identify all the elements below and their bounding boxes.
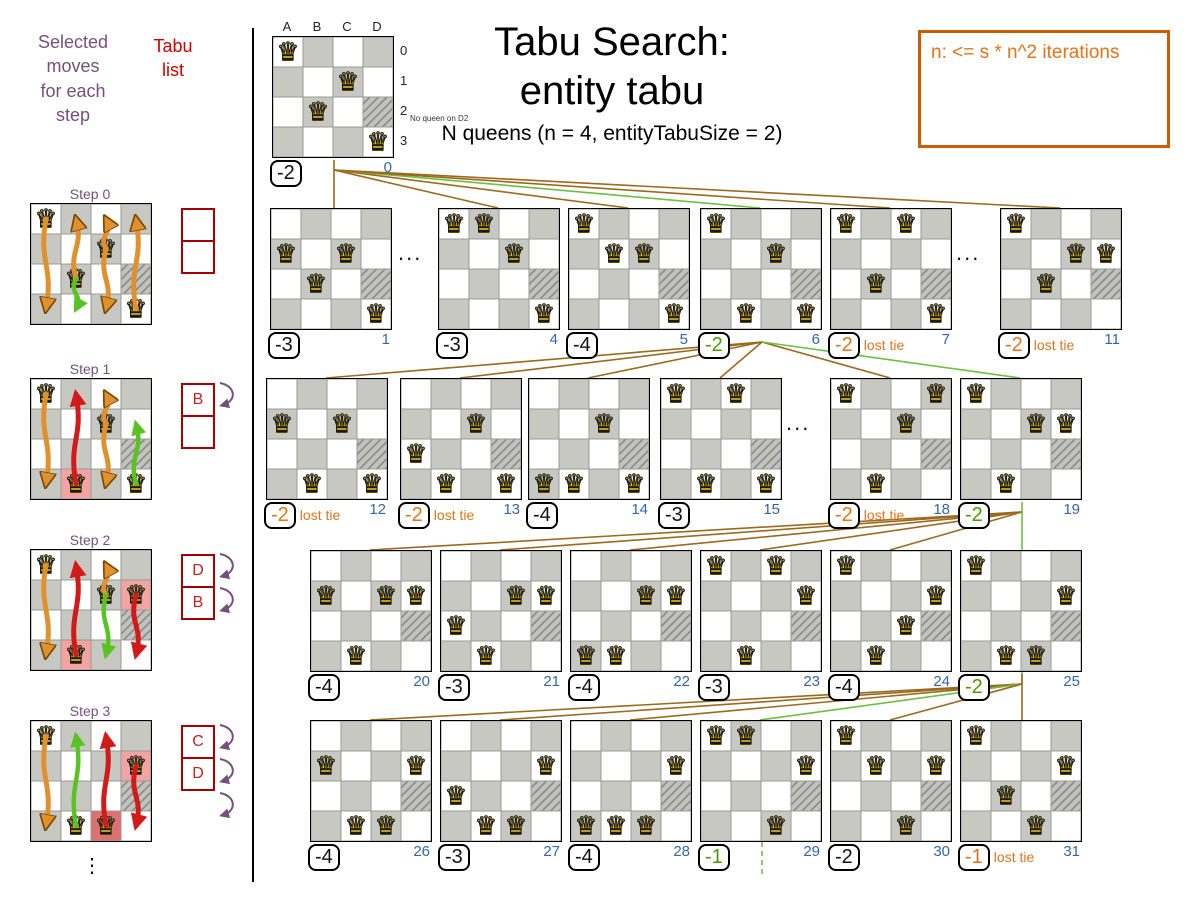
queen-icon: ♛ [1055, 754, 1077, 779]
queen-icon: ♛ [307, 100, 329, 125]
cell-B0: ♛ [469, 209, 499, 239]
cell-C3 [589, 469, 619, 499]
score-row-21: -321 [438, 672, 562, 702]
queen-icon: ♛ [65, 267, 87, 292]
cell-C1 [891, 751, 921, 781]
cell-B0 [991, 551, 1021, 581]
board-23: ♛♛♛♛ [700, 550, 822, 672]
cell-A3 [401, 469, 431, 499]
queen-icon: ♛ [755, 472, 777, 497]
cell-B2 [861, 439, 891, 469]
queen-icon: ♛ [505, 584, 527, 609]
cell-A0 [441, 551, 471, 581]
queen-icon: ♛ [925, 754, 947, 779]
cell-A3 [439, 299, 469, 329]
cell-A0 [401, 379, 431, 409]
cell-C3 [891, 641, 921, 671]
board-index: 30 [933, 843, 950, 860]
lost-tie-label: lost tie [994, 849, 1034, 865]
cell-D2 [751, 439, 781, 469]
score-row-25: -225 [958, 672, 1082, 702]
board-index: 13 [503, 501, 520, 518]
tabu-entry-empty [181, 240, 215, 274]
tabu-entry-empty [181, 208, 215, 242]
queen-icon: ♛ [405, 754, 427, 779]
cell-C0 [761, 209, 791, 239]
cell-A0 [529, 379, 559, 409]
cell-B2 [691, 439, 721, 469]
cell-C1: ♛ [91, 409, 121, 439]
cell-B1 [61, 751, 91, 781]
board-index: 4 [550, 331, 558, 348]
cell-D2 [1091, 269, 1121, 299]
cell-D1: ♛ [661, 581, 691, 611]
cell-D0 [491, 379, 521, 409]
cell-B0 [861, 551, 891, 581]
tree-ellipsis: ... [398, 240, 422, 266]
cell-A0: ♛ [661, 379, 691, 409]
cell-B2 [341, 611, 371, 641]
queen-icon: ♛ [367, 130, 389, 155]
board-index: 31 [1063, 843, 1080, 860]
score-row-4: -34 [436, 330, 560, 360]
cell-B1 [991, 751, 1021, 781]
cell-B1 [731, 581, 761, 611]
cell-B2: ♛ [301, 269, 331, 299]
cell-C0 [371, 721, 401, 751]
cell-B0 [471, 551, 501, 581]
queen-icon: ♛ [895, 614, 917, 639]
score-row-22: -422 [568, 672, 692, 702]
cell-B3 [599, 299, 629, 329]
cell-B3 [303, 127, 333, 157]
cell-A2 [31, 439, 61, 469]
cell-C3: ♛ [761, 811, 791, 841]
board-s1: ♛♛♛♛ [30, 378, 152, 500]
cell-A0 [311, 551, 341, 581]
cell-A1 [701, 751, 731, 781]
queen-icon: ♛ [533, 472, 555, 497]
queen-icon: ♛ [125, 583, 147, 608]
cell-C3 [499, 299, 529, 329]
cell-B3: ♛ [601, 811, 631, 841]
queen-icon: ♛ [705, 212, 727, 237]
cell-C3 [333, 127, 363, 157]
cell-C3: ♛ [891, 811, 921, 841]
cell-A0: ♛ [31, 204, 61, 234]
queen-icon: ♛ [405, 584, 427, 609]
cell-D1 [363, 67, 393, 97]
cell-B3: ♛ [61, 469, 91, 499]
board-15: ♛♛♛♛ [660, 378, 782, 500]
queen-icon: ♛ [65, 643, 87, 668]
board-25: ♛♛♛♛ [960, 550, 1082, 672]
cell-C0 [327, 379, 357, 409]
root-col-label-A: A [272, 19, 302, 34]
cell-D1: ♛ [121, 751, 151, 781]
cell-D0 [529, 209, 559, 239]
score-badge: -2 [264, 502, 296, 529]
cell-A0: ♛ [701, 551, 731, 581]
cell-B3: ♛ [691, 469, 721, 499]
cell-B3 [1031, 299, 1061, 329]
cell-D2 [659, 269, 689, 299]
cell-A3 [273, 127, 303, 157]
cell-D0 [1051, 551, 1081, 581]
cell-B2 [991, 439, 1021, 469]
tabu-shift-arrow-icon [216, 754, 242, 786]
cell-C2: ♛ [891, 611, 921, 641]
board-29: ♛♛♛♛ [700, 720, 822, 842]
no-queen-annotation: No queen on D2 [410, 114, 468, 123]
cell-A3 [569, 299, 599, 329]
cell-A3 [267, 469, 297, 499]
cell-C0 [1021, 379, 1051, 409]
tree-edge [334, 170, 890, 208]
cell-B3 [861, 811, 891, 841]
queen-icon: ♛ [965, 382, 987, 407]
cell-A1 [31, 234, 61, 264]
cell-C3 [1021, 469, 1051, 499]
cell-C1: ♛ [461, 409, 491, 439]
queen-icon: ♛ [505, 814, 527, 839]
board-index: 11 [1104, 331, 1120, 348]
cell-D1: ♛ [401, 581, 431, 611]
queen-icon: ♛ [795, 302, 817, 327]
cell-D0 [121, 721, 151, 751]
cell-C2 [721, 439, 751, 469]
lost-tie-label: lost tie [864, 337, 904, 353]
cell-B1 [431, 409, 461, 439]
cell-C0 [331, 209, 361, 239]
cell-D1 [791, 239, 821, 269]
tabu-shift-arrow-icon [216, 378, 242, 410]
cell-A3 [831, 469, 861, 499]
tabu-shift-arrow-icon [216, 549, 242, 581]
board-index: 29 [803, 843, 820, 860]
cell-A1 [831, 409, 861, 439]
queen-icon: ♛ [315, 754, 337, 779]
cell-C2 [501, 781, 531, 811]
score-badge: -2 [828, 332, 860, 359]
cell-A3 [961, 811, 991, 841]
queen-icon: ♛ [865, 472, 887, 497]
cell-C3: ♛ [1021, 641, 1051, 671]
queen-icon: ♛ [603, 242, 625, 267]
root-row-label-3: 3 [400, 126, 407, 156]
score-badge: -2 [998, 332, 1030, 359]
board-index: 26 [413, 843, 430, 860]
cell-C1 [721, 409, 751, 439]
cell-C2 [761, 611, 791, 641]
cell-B2 [431, 439, 461, 469]
queen-icon: ♛ [65, 814, 87, 839]
score-badge: -4 [828, 674, 860, 701]
cell-C2 [371, 611, 401, 641]
cell-B0 [601, 721, 631, 751]
cell-A0 [571, 551, 601, 581]
cell-A1 [571, 751, 601, 781]
cell-B1 [471, 751, 501, 781]
cell-C1 [501, 751, 531, 781]
cell-A3 [831, 811, 861, 841]
cell-D1 [921, 239, 951, 269]
cell-D1: ♛ [661, 751, 691, 781]
score-badge: -4 [568, 674, 600, 701]
cell-D2 [361, 269, 391, 299]
cell-C2 [1021, 611, 1051, 641]
board-30: ♛♛♛♛ [830, 720, 952, 842]
cell-C0 [589, 379, 619, 409]
cell-A2 [273, 97, 303, 127]
cell-A2: ♛ [401, 439, 431, 469]
queen-icon: ♛ [995, 784, 1017, 809]
cell-B0 [471, 721, 501, 751]
cell-C3 [891, 469, 921, 499]
cell-B2 [601, 611, 631, 641]
cell-D2 [921, 269, 951, 299]
cell-B3 [991, 811, 1021, 841]
cell-C0 [501, 721, 531, 751]
queen-icon: ♛ [925, 302, 947, 327]
cell-C3: ♛ [1021, 811, 1051, 841]
cell-B2 [731, 611, 761, 641]
board-index: 14 [631, 501, 648, 518]
tabu-shift-arrow-icon [216, 720, 242, 752]
queen-icon: ♛ [125, 297, 147, 322]
queen-icon: ♛ [665, 382, 687, 407]
cell-B2 [861, 611, 891, 641]
cell-D1: ♛ [121, 580, 151, 610]
cell-D1 [357, 409, 387, 439]
queen-icon: ♛ [331, 412, 353, 437]
cell-D0 [921, 721, 951, 751]
cell-D3: ♛ [751, 469, 781, 499]
queen-icon: ♛ [605, 814, 627, 839]
cell-A0 [311, 721, 341, 751]
cell-D0 [531, 721, 561, 751]
cell-C0 [91, 379, 121, 409]
score-badge: -4 [526, 502, 558, 529]
cell-A0 [267, 379, 297, 409]
cell-A2 [831, 269, 861, 299]
queen-icon: ♛ [533, 302, 555, 327]
cell-A2 [831, 611, 861, 641]
cell-D0 [1051, 379, 1081, 409]
lost-tie-label: lost tie [1034, 337, 1074, 353]
queen-icon: ♛ [1025, 644, 1047, 669]
score-badge: -2 [398, 502, 430, 529]
score-row-19: -219 [958, 500, 1082, 530]
cell-D3: ♛ [659, 299, 689, 329]
tabu-shift-arrow-icon [216, 788, 242, 820]
board-7: ♛♛♛♛ [830, 208, 952, 330]
cell-B0 [601, 551, 631, 581]
cell-B0 [341, 551, 371, 581]
cell-C1 [1021, 581, 1051, 611]
cell-B1 [301, 239, 331, 269]
cell-C3 [327, 469, 357, 499]
cell-A3 [701, 299, 731, 329]
queen-icon: ♛ [765, 242, 787, 267]
board-24: ♛♛♛♛ [830, 550, 952, 672]
cell-C0: ♛ [891, 209, 921, 239]
cell-D3 [1051, 641, 1081, 671]
cell-C2 [631, 611, 661, 641]
cell-A1 [831, 239, 861, 269]
cell-B2: ♛ [861, 269, 891, 299]
queen-icon: ♛ [965, 724, 987, 749]
score-row-31: -1lost tie31 [958, 842, 1082, 872]
cell-D2 [791, 781, 821, 811]
board-index: 7 [942, 331, 950, 348]
cell-A0: ♛ [31, 379, 61, 409]
cell-A2 [31, 610, 61, 640]
score-row-26: -426 [308, 842, 432, 872]
queen-icon: ♛ [375, 584, 397, 609]
board-index: 22 [673, 673, 690, 690]
score-badge: -2 [958, 502, 990, 529]
queen-icon: ♛ [277, 40, 299, 65]
cell-B3: ♛ [297, 469, 327, 499]
queen-icon: ♛ [965, 554, 987, 579]
board-index: 19 [1063, 501, 1080, 518]
cell-B2: ♛ [303, 97, 333, 127]
tree-ellipsis: ... [786, 410, 810, 436]
queen-icon: ♛ [315, 584, 337, 609]
board-21: ♛♛♛♛ [440, 550, 562, 672]
score-row-27: -327 [438, 842, 562, 872]
root-row-label-1: 1 [400, 66, 407, 96]
tabu-entry-C: C [181, 725, 215, 759]
cell-A2 [1001, 269, 1031, 299]
cell-B2 [61, 610, 91, 640]
selected-moves-header: Selected moves for each step [14, 30, 132, 127]
queen-icon: ♛ [765, 554, 787, 579]
cell-A0 [271, 209, 301, 239]
cell-D0 [121, 550, 151, 580]
cell-B2 [341, 781, 371, 811]
cell-A3 [311, 811, 341, 841]
cell-D3: ♛ [361, 299, 391, 329]
queen-icon: ♛ [335, 242, 357, 267]
cell-B1 [61, 409, 91, 439]
board-19: ♛♛♛♛ [960, 378, 1082, 500]
cell-D3 [531, 641, 561, 671]
cell-A3 [31, 294, 61, 324]
cell-A2 [571, 611, 601, 641]
score-row-23: -323 [698, 672, 822, 702]
cell-C1: ♛ [589, 409, 619, 439]
cell-D0 [661, 721, 691, 751]
cell-A2 [831, 439, 861, 469]
cell-A0: ♛ [831, 721, 861, 751]
board-index: 5 [680, 331, 688, 348]
score-badge: -4 [308, 674, 340, 701]
score-badge: -2 [698, 332, 730, 359]
queen-icon: ♛ [337, 70, 359, 95]
score-row-15: -315 [658, 500, 782, 530]
cell-A0: ♛ [31, 721, 61, 751]
board-index: 12 [369, 501, 386, 518]
cell-B2: ♛ [991, 781, 1021, 811]
cell-B2 [731, 781, 761, 811]
cell-D2 [921, 439, 951, 469]
cell-C3: ♛ [91, 811, 121, 841]
cell-C0 [499, 209, 529, 239]
cell-C1: ♛ [891, 409, 921, 439]
cell-B1 [469, 239, 499, 269]
cell-C3: ♛ [631, 811, 661, 841]
iterations-note-text: n: <= s * n^2 iterations [921, 33, 1167, 73]
cell-D1: ♛ [1051, 581, 1081, 611]
cell-C0 [371, 551, 401, 581]
cell-C2 [1021, 439, 1051, 469]
tabu-entry-empty [181, 415, 215, 449]
cell-C3 [371, 641, 401, 671]
tabu-entry-B: B [181, 586, 215, 620]
cell-B3: ♛ [731, 641, 761, 671]
cell-A3: ♛ [571, 641, 601, 671]
cell-D0 [921, 209, 951, 239]
cell-D3 [921, 641, 951, 671]
cell-A2 [31, 264, 61, 294]
board-index: 23 [803, 673, 820, 690]
tabu-shift-arrow-icon [216, 583, 242, 615]
cell-A2 [961, 611, 991, 641]
cell-A1 [569, 239, 599, 269]
queen-icon: ♛ [35, 724, 57, 749]
cell-C3 [461, 469, 491, 499]
board-s0: ♛♛♛♛ [30, 203, 152, 325]
cell-A0: ♛ [31, 550, 61, 580]
cell-C3 [761, 299, 791, 329]
queen-icon: ♛ [895, 814, 917, 839]
cell-D3 [401, 811, 431, 841]
cell-B1 [991, 409, 1021, 439]
cell-C3 [721, 469, 751, 499]
cell-B1 [61, 580, 91, 610]
board-index: 27 [543, 843, 560, 860]
cell-B2 [991, 611, 1021, 641]
cell-C1: ♛ [1021, 409, 1051, 439]
cell-D3: ♛ [619, 469, 649, 499]
cell-A0: ♛ [961, 379, 991, 409]
board-12: ♛♛♛♛ [266, 378, 388, 500]
queen-icon: ♛ [623, 472, 645, 497]
board-index: 6 [812, 331, 820, 348]
cell-D3: ♛ [121, 294, 151, 324]
queen-icon: ♛ [1055, 584, 1077, 609]
cell-C0 [1021, 551, 1051, 581]
cell-C1: ♛ [91, 580, 121, 610]
cell-B2 [471, 781, 501, 811]
queen-icon: ♛ [705, 554, 727, 579]
cell-A2 [267, 439, 297, 469]
queen-icon: ♛ [301, 472, 323, 497]
cell-A1 [441, 751, 471, 781]
queen-icon: ♛ [305, 272, 327, 297]
cell-A1 [961, 581, 991, 611]
cell-C2 [327, 439, 357, 469]
cell-B3: ♛ [559, 469, 589, 499]
cell-D0 [661, 551, 691, 581]
queen-icon: ♛ [835, 554, 857, 579]
board-26: ♛♛♛♛ [310, 720, 432, 842]
cell-A1 [529, 409, 559, 439]
root-row-label-2: 2 [400, 96, 407, 126]
queen-icon: ♛ [495, 472, 517, 497]
